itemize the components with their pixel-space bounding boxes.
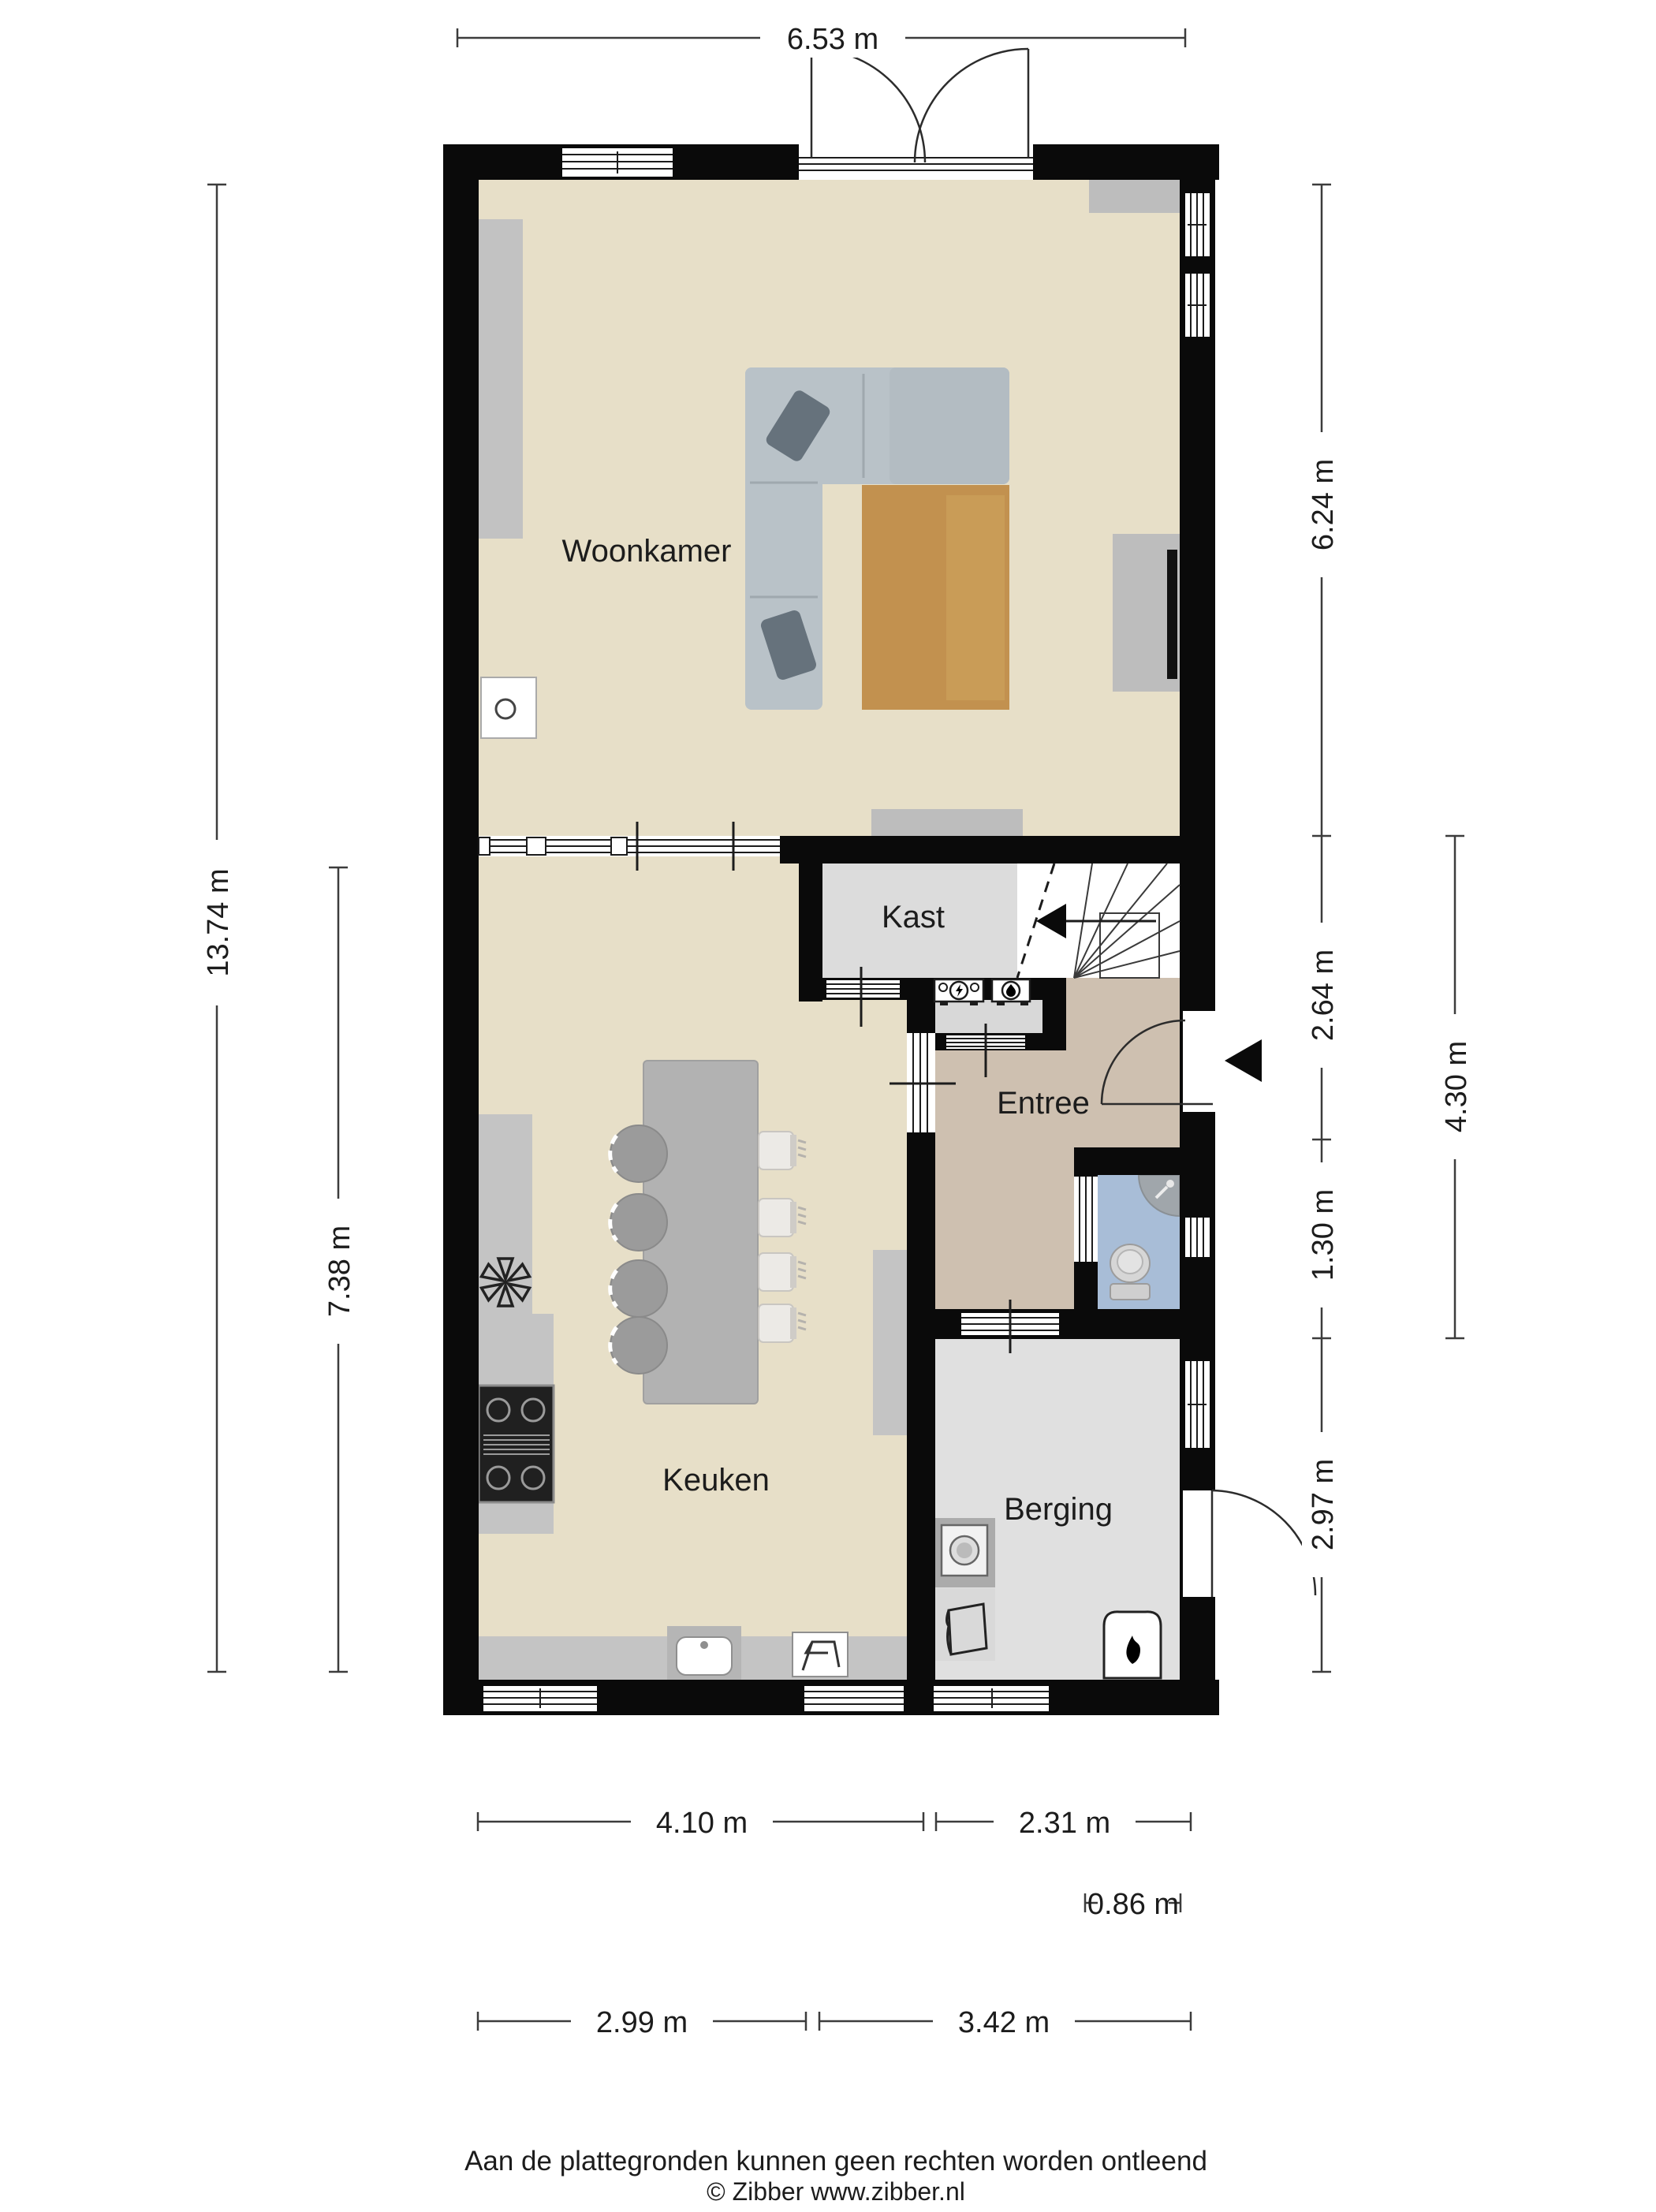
toilet-icon [1110,1244,1150,1300]
wall-left [443,144,479,1715]
wall-kast-left [799,836,822,1002]
electric-meter-icon [934,979,983,1005]
wall-living-south [780,836,1180,864]
entrance-arrow-icon [1225,1039,1262,1082]
footer-credit: © Zibber www.zibber.nl [707,2177,965,2206]
dim-label-right-hall: 2.64 m [1307,949,1340,1041]
dim-bottom-row2: 2.99 m 3.42 m [478,2001,1191,2041]
sideboard-top [1089,180,1180,213]
room-label-keuken: Keuken [662,1463,770,1498]
tv-icon [1167,550,1177,679]
laundry-basket-icon [934,1588,995,1661]
stool [610,1125,667,1182]
dim-label-right-outer: 4.30 m [1440,1041,1473,1132]
dim-label-right-toilet: 1.30 m [1307,1189,1340,1281]
dim-label-bottom-kitchen: 4.10 m [656,1807,748,1840]
stool [610,1194,667,1251]
window-toilet [1185,1218,1210,1257]
dim-left-lower: 7.38 m [319,867,358,1672]
tv-cabinet [1113,534,1180,692]
dim-bottom-row1: 4.10 m 2.31 m [478,1802,1191,1841]
footer: Aan de plattegronden kunnen geen rechten… [464,2146,1207,2206]
footer-disclaimer: Aan de plattegronden kunnen geen rechten… [464,2146,1207,2177]
window-top [562,148,673,177]
window-bottom-left [483,1686,597,1711]
wood-stove-icon [481,677,536,738]
wall-right [1180,144,1215,1715]
berging-door [1183,1490,1315,1597]
washing-machine-icon [934,1518,995,1587]
dim-label-left-total: 13.74 m [202,868,235,976]
dim-right-inner: 6.24 m 2.64 m 1.30 m 2.97 m [1302,185,1341,1672]
meters [934,979,1030,1005]
dim-bottom-offset: 0.86 m [1085,1888,1180,1921]
dim-label-bottom-lower-left: 2.99 m [596,2006,688,2039]
water-meter-icon [992,979,1030,1005]
stove-icon [479,1386,554,1502]
dim-right-outer: 4.30 m [1435,836,1475,1338]
woonkamer-floor [479,180,1180,837]
double-door-top [799,49,1033,180]
wall-cabinet [479,219,523,539]
boiler-flame-icon [1104,1612,1161,1678]
window-bottom-mid [804,1686,904,1711]
dim-label-top: 6.53 m [787,23,878,56]
wall-niche-right [1042,978,1066,1050]
toilet-door-opening [1074,1177,1098,1262]
window-living-1 [1185,193,1210,256]
window-bottom-berging [934,1686,1049,1711]
dim-label-bottom-storage: 2.31 m [1019,1807,1110,1840]
kitchen-counter-right [873,1250,907,1435]
kitchen-counter-left3 [479,1314,554,1386]
folded-chair-icon [793,1632,848,1677]
dim-label-bottom-lower-right: 3.42 m [958,2006,1050,2039]
window-living-2 [1185,274,1210,337]
floorplan-canvas: Woonkamer Kast Entree Keuken Berging 6.5… [0,0,1656,2208]
kitchen-counter-left4 [479,1502,554,1534]
dim-label-left-lower: 7.38 m [323,1225,356,1317]
room-label-berging: Berging [1004,1492,1113,1527]
sink-icon [677,1637,732,1675]
dim-label-bottom-offset: 0.86 m [1087,1888,1179,1921]
dim-label-right-livingroom: 6.24 m [1307,459,1340,550]
rug [862,485,1009,710]
stool [610,1260,667,1317]
dim-left-total: 13.74 m [197,185,237,1672]
stool [610,1317,667,1374]
dim-top: 6.53 m [457,18,1185,58]
window-berging-east [1185,1361,1210,1448]
dim-label-right-storage: 2.97 m [1307,1459,1340,1550]
room-label-kast: Kast [882,900,945,934]
sideboard-bottom [871,809,1023,837]
room-label-entree: Entree [997,1086,1090,1121]
room-label-woonkamer: Woonkamer [562,534,732,569]
